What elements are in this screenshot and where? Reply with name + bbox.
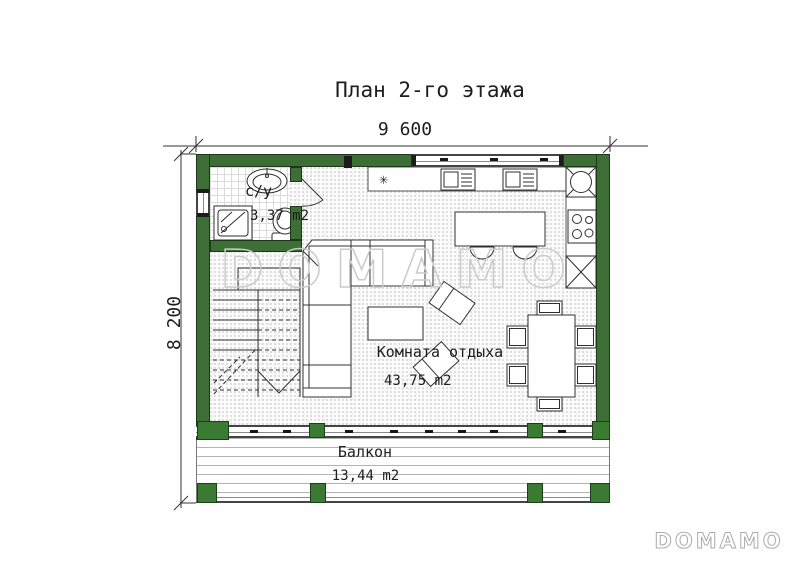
balcony-post (309, 423, 325, 438)
window-end-cap (559, 155, 563, 166)
wall-stub (344, 156, 352, 168)
pane-dash (250, 430, 258, 433)
bathroom-area-label: 3,37 m2 (250, 209, 309, 224)
dimension-height-label: 8 200 (165, 278, 185, 368)
wall-bathroom-door-stub (290, 167, 302, 182)
pane-dash (345, 430, 353, 433)
pane-dash (283, 430, 291, 433)
balcony-post (197, 483, 217, 503)
balcony-area-label: 13,44 m2 (318, 469, 413, 484)
watermark-text: DOMAMO (188, 240, 612, 300)
balcony-post (527, 423, 543, 438)
window-end-cap (197, 189, 209, 193)
shower-tray (214, 206, 252, 240)
pane-dash (390, 430, 398, 433)
kitchen-appliance-right (503, 169, 537, 190)
wall-top-left (196, 154, 412, 167)
balcony-post (590, 483, 610, 503)
balcony-label: Балкон (320, 444, 410, 461)
pane-dash (558, 430, 566, 433)
pane-dash (425, 430, 433, 433)
pane-dash (540, 158, 548, 161)
balcony-post (197, 421, 229, 440)
pane-dash (490, 430, 498, 433)
brand-logo: DOMAMO (645, 529, 793, 553)
pane-dash (490, 158, 498, 161)
pane-dash (458, 430, 466, 433)
coffee-table (368, 307, 423, 340)
pane-dash (440, 158, 448, 161)
wall-left-upper (196, 154, 210, 193)
page-title: План 2-го этажа (290, 79, 570, 102)
lounge-label: Комната отдыха (360, 344, 520, 361)
window-end-cap (197, 213, 209, 217)
balcony-post (310, 483, 326, 503)
floor-plan-canvas: План 2-го этажа 9 600 8 200 (0, 0, 800, 567)
window-end-cap (412, 155, 416, 166)
stove (568, 210, 596, 243)
dimension-width-label: 9 600 (355, 120, 455, 140)
kitchen-appliance-left (441, 169, 475, 190)
balcony-post (592, 421, 610, 440)
bathroom-door-swing (302, 179, 323, 206)
kitchen-star-symbol: ✳ (379, 170, 388, 188)
dining-table (528, 315, 575, 397)
lounge-area-label: 43,75 m2 (384, 374, 451, 389)
bathroom-label: с/у (245, 183, 272, 200)
balcony-post (527, 483, 543, 503)
corner-sink-unit (566, 167, 596, 197)
